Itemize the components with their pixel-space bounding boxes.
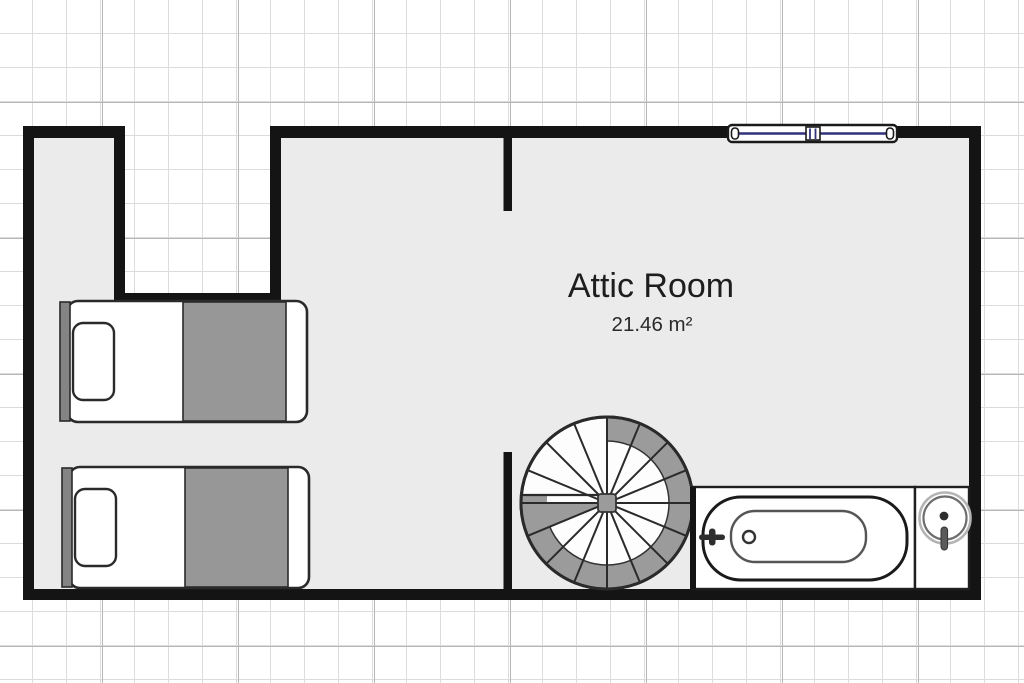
partition-wall-top bbox=[504, 137, 513, 211]
bed-pillow bbox=[73, 323, 114, 400]
single-bed-bottom bbox=[62, 467, 309, 588]
room-label: Attic Room bbox=[568, 267, 734, 305]
single-bed-top bbox=[60, 301, 307, 422]
double-casement-window bbox=[728, 125, 897, 142]
window-mullion bbox=[806, 127, 820, 140]
stair-center-post bbox=[598, 494, 616, 512]
floor-plan-svg: Attic Room 21.46 m² bbox=[0, 0, 1024, 683]
floorplan-canvas: Attic Room 21.46 m² bbox=[0, 0, 1024, 683]
spiral-staircase bbox=[521, 417, 693, 589]
bed-blanket bbox=[185, 468, 288, 587]
round-sink bbox=[915, 487, 971, 589]
bed-pillow bbox=[75, 489, 116, 566]
sink-faucet-icon bbox=[941, 527, 948, 550]
bathtub-drain bbox=[743, 531, 755, 543]
bathtub bbox=[690, 487, 915, 589]
bed-blanket bbox=[183, 302, 286, 421]
bathtub-left-wall bbox=[690, 487, 696, 589]
window-cap-left bbox=[732, 128, 739, 139]
room-area: 21.46 m² bbox=[612, 313, 693, 336]
sink-drain bbox=[940, 512, 949, 521]
window-cap-right bbox=[887, 128, 894, 139]
partition-wall-bottom bbox=[504, 452, 513, 589]
bed-headboard bbox=[62, 468, 72, 587]
bed-headboard bbox=[60, 302, 70, 421]
